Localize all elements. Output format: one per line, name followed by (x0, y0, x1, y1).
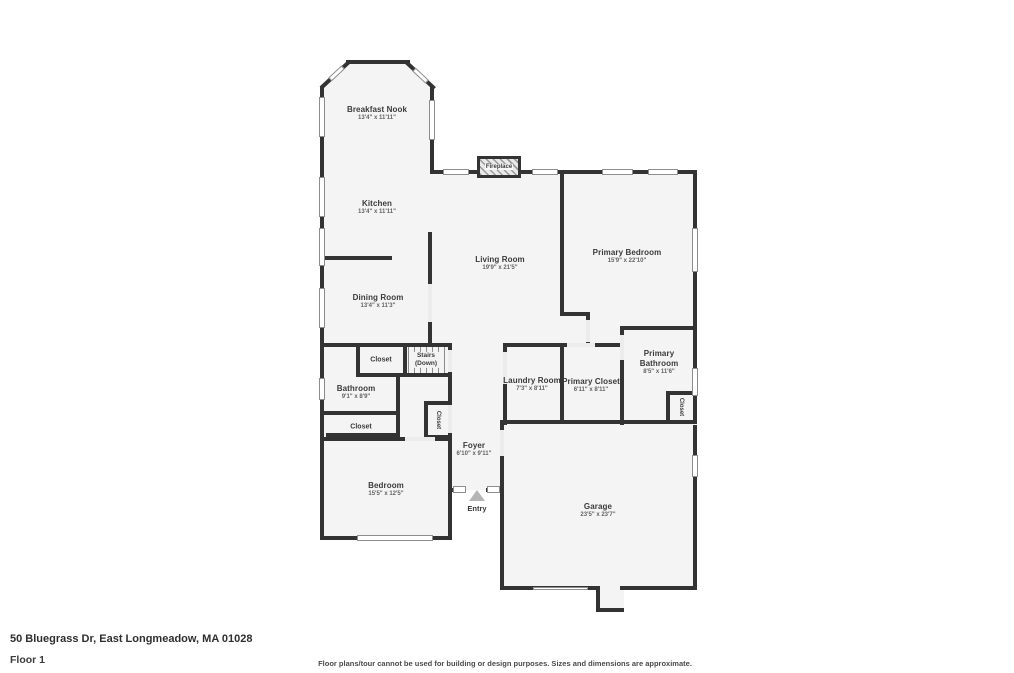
wall (403, 373, 450, 377)
room-dims: 6'11" x 8'11" (562, 387, 620, 393)
room-label-breakfast-nook: Breakfast Nook 13'4" x 11'11" (347, 105, 407, 121)
room-dims: 13'4" x 11'11" (358, 209, 396, 215)
wall (428, 322, 432, 345)
wall (346, 60, 410, 64)
window (319, 378, 325, 400)
room-label-laundry-room: Laundry Room 7'3" x 8'11" (503, 376, 561, 392)
wall (620, 586, 697, 590)
room-dims: 19'9" x 21'5" (475, 265, 525, 271)
room-dims: 23'5" x 23'7" (580, 512, 615, 518)
wall (356, 343, 360, 377)
disclaimer: Floor plans/tour cannot be used for buil… (318, 659, 692, 668)
room-label-dining-room: Dining Room 13'4" x 11'3" (353, 293, 404, 309)
room-name: Dining Room (353, 293, 404, 302)
door-opening (620, 335, 624, 360)
wall (403, 343, 407, 377)
room-name: Laundry Room (503, 376, 561, 385)
wall (596, 608, 624, 612)
room-name: Primary Bathroom (630, 349, 688, 368)
room-label-primary-closet: Primary Closet 6'11" x 8'11" (562, 377, 620, 393)
address: 50 Bluegrass Dr, East Longmeadow, MA 010… (10, 633, 253, 645)
door-opening (500, 430, 504, 456)
window (429, 100, 435, 140)
door-opening (567, 343, 595, 347)
door-opening (586, 320, 590, 342)
door-opening (428, 284, 432, 322)
closet-label-primary-bath: Closet (678, 398, 684, 416)
wall (693, 425, 697, 590)
wall (560, 174, 564, 314)
wall (428, 232, 432, 284)
room-name: Bedroom (368, 481, 404, 490)
entry-arrow-icon (469, 490, 485, 501)
wall (666, 391, 670, 423)
window (319, 288, 325, 328)
room-dims: 9'1" x 8'9" (337, 394, 376, 400)
closet-label-hall: Closet (370, 357, 391, 364)
window (648, 169, 678, 175)
room-label-garage: Garage 23'5" x 23'7" (580, 502, 615, 518)
room-name: Bathroom (337, 384, 376, 393)
wall (322, 256, 392, 260)
window (602, 169, 633, 175)
closet-label-foyer: Closet (435, 411, 441, 429)
room-dims: 15'5" x 12'5" (368, 491, 404, 497)
window (319, 97, 325, 137)
room-dims: 8'5" x 11'6" (630, 369, 688, 375)
room-name: Primary Bedroom (593, 248, 662, 257)
room-dims: 7'3" x 8'11" (503, 386, 561, 392)
floor-label: Floor 1 (10, 654, 45, 666)
room-dims: 13'4" x 11'11" (347, 115, 407, 121)
room-name: Living Room (475, 255, 525, 264)
window (532, 169, 558, 175)
fireplace-label: Fireplace (485, 164, 513, 170)
window-bedroom (357, 535, 433, 541)
room-label-bathroom: Bathroom 9'1" x 8'9" (337, 384, 376, 400)
window (443, 169, 469, 175)
entry-jamb (487, 486, 500, 493)
door-opening (448, 350, 452, 372)
room-name: Garage (580, 502, 615, 511)
window (319, 177, 325, 217)
wall (396, 373, 400, 437)
room-dims: 6'10" x 9'11" (457, 451, 492, 457)
wall (620, 326, 697, 330)
door-opening (448, 405, 452, 433)
fireplace: Fireplace (477, 156, 521, 178)
stairs-label: Stairs (Down) (413, 352, 439, 368)
room-label-kitchen: Kitchen 13'4" x 11'11" (358, 199, 396, 215)
room-name: Breakfast Nook (347, 105, 407, 114)
room-label-foyer: Foyer 6'10" x 9'11" (457, 441, 492, 457)
room-name: Foyer (457, 441, 492, 450)
stairs-label-line2: (Down) (415, 360, 437, 367)
room-label-primary-bedroom: Primary Bedroom 15'9" x 22'10" (593, 248, 662, 264)
room-name: Kitchen (358, 199, 396, 208)
entry-label: Entry (467, 504, 486, 513)
wall (666, 391, 693, 395)
garage-door-mark (533, 587, 588, 590)
closet-label-bath: Closet (350, 424, 371, 431)
window (692, 368, 698, 396)
entry-jamb (453, 486, 466, 493)
window (692, 228, 698, 272)
door-opening (405, 437, 435, 441)
fill-foyer (448, 345, 503, 490)
window (692, 455, 698, 477)
room-dims: 15'9" x 22'10" (593, 258, 662, 264)
room-dims: 13'4" x 11'3" (353, 303, 404, 309)
stairs-label-line1: Stairs (417, 352, 435, 359)
room-label-bedroom: Bedroom 15'5" x 12'5" (368, 481, 404, 497)
wall (424, 401, 428, 439)
floor-plan: Fireplace Stairs (Down) Entry Closet Clo… (0, 0, 1014, 673)
window (319, 228, 325, 266)
room-label-living-room: Living Room 19'9" x 21'5" (475, 255, 525, 271)
room-label-primary-bathroom: Primary Bathroom 8'5" x 11'6" (630, 349, 688, 375)
wall (322, 411, 400, 415)
room-name: Primary Closet (562, 377, 620, 386)
